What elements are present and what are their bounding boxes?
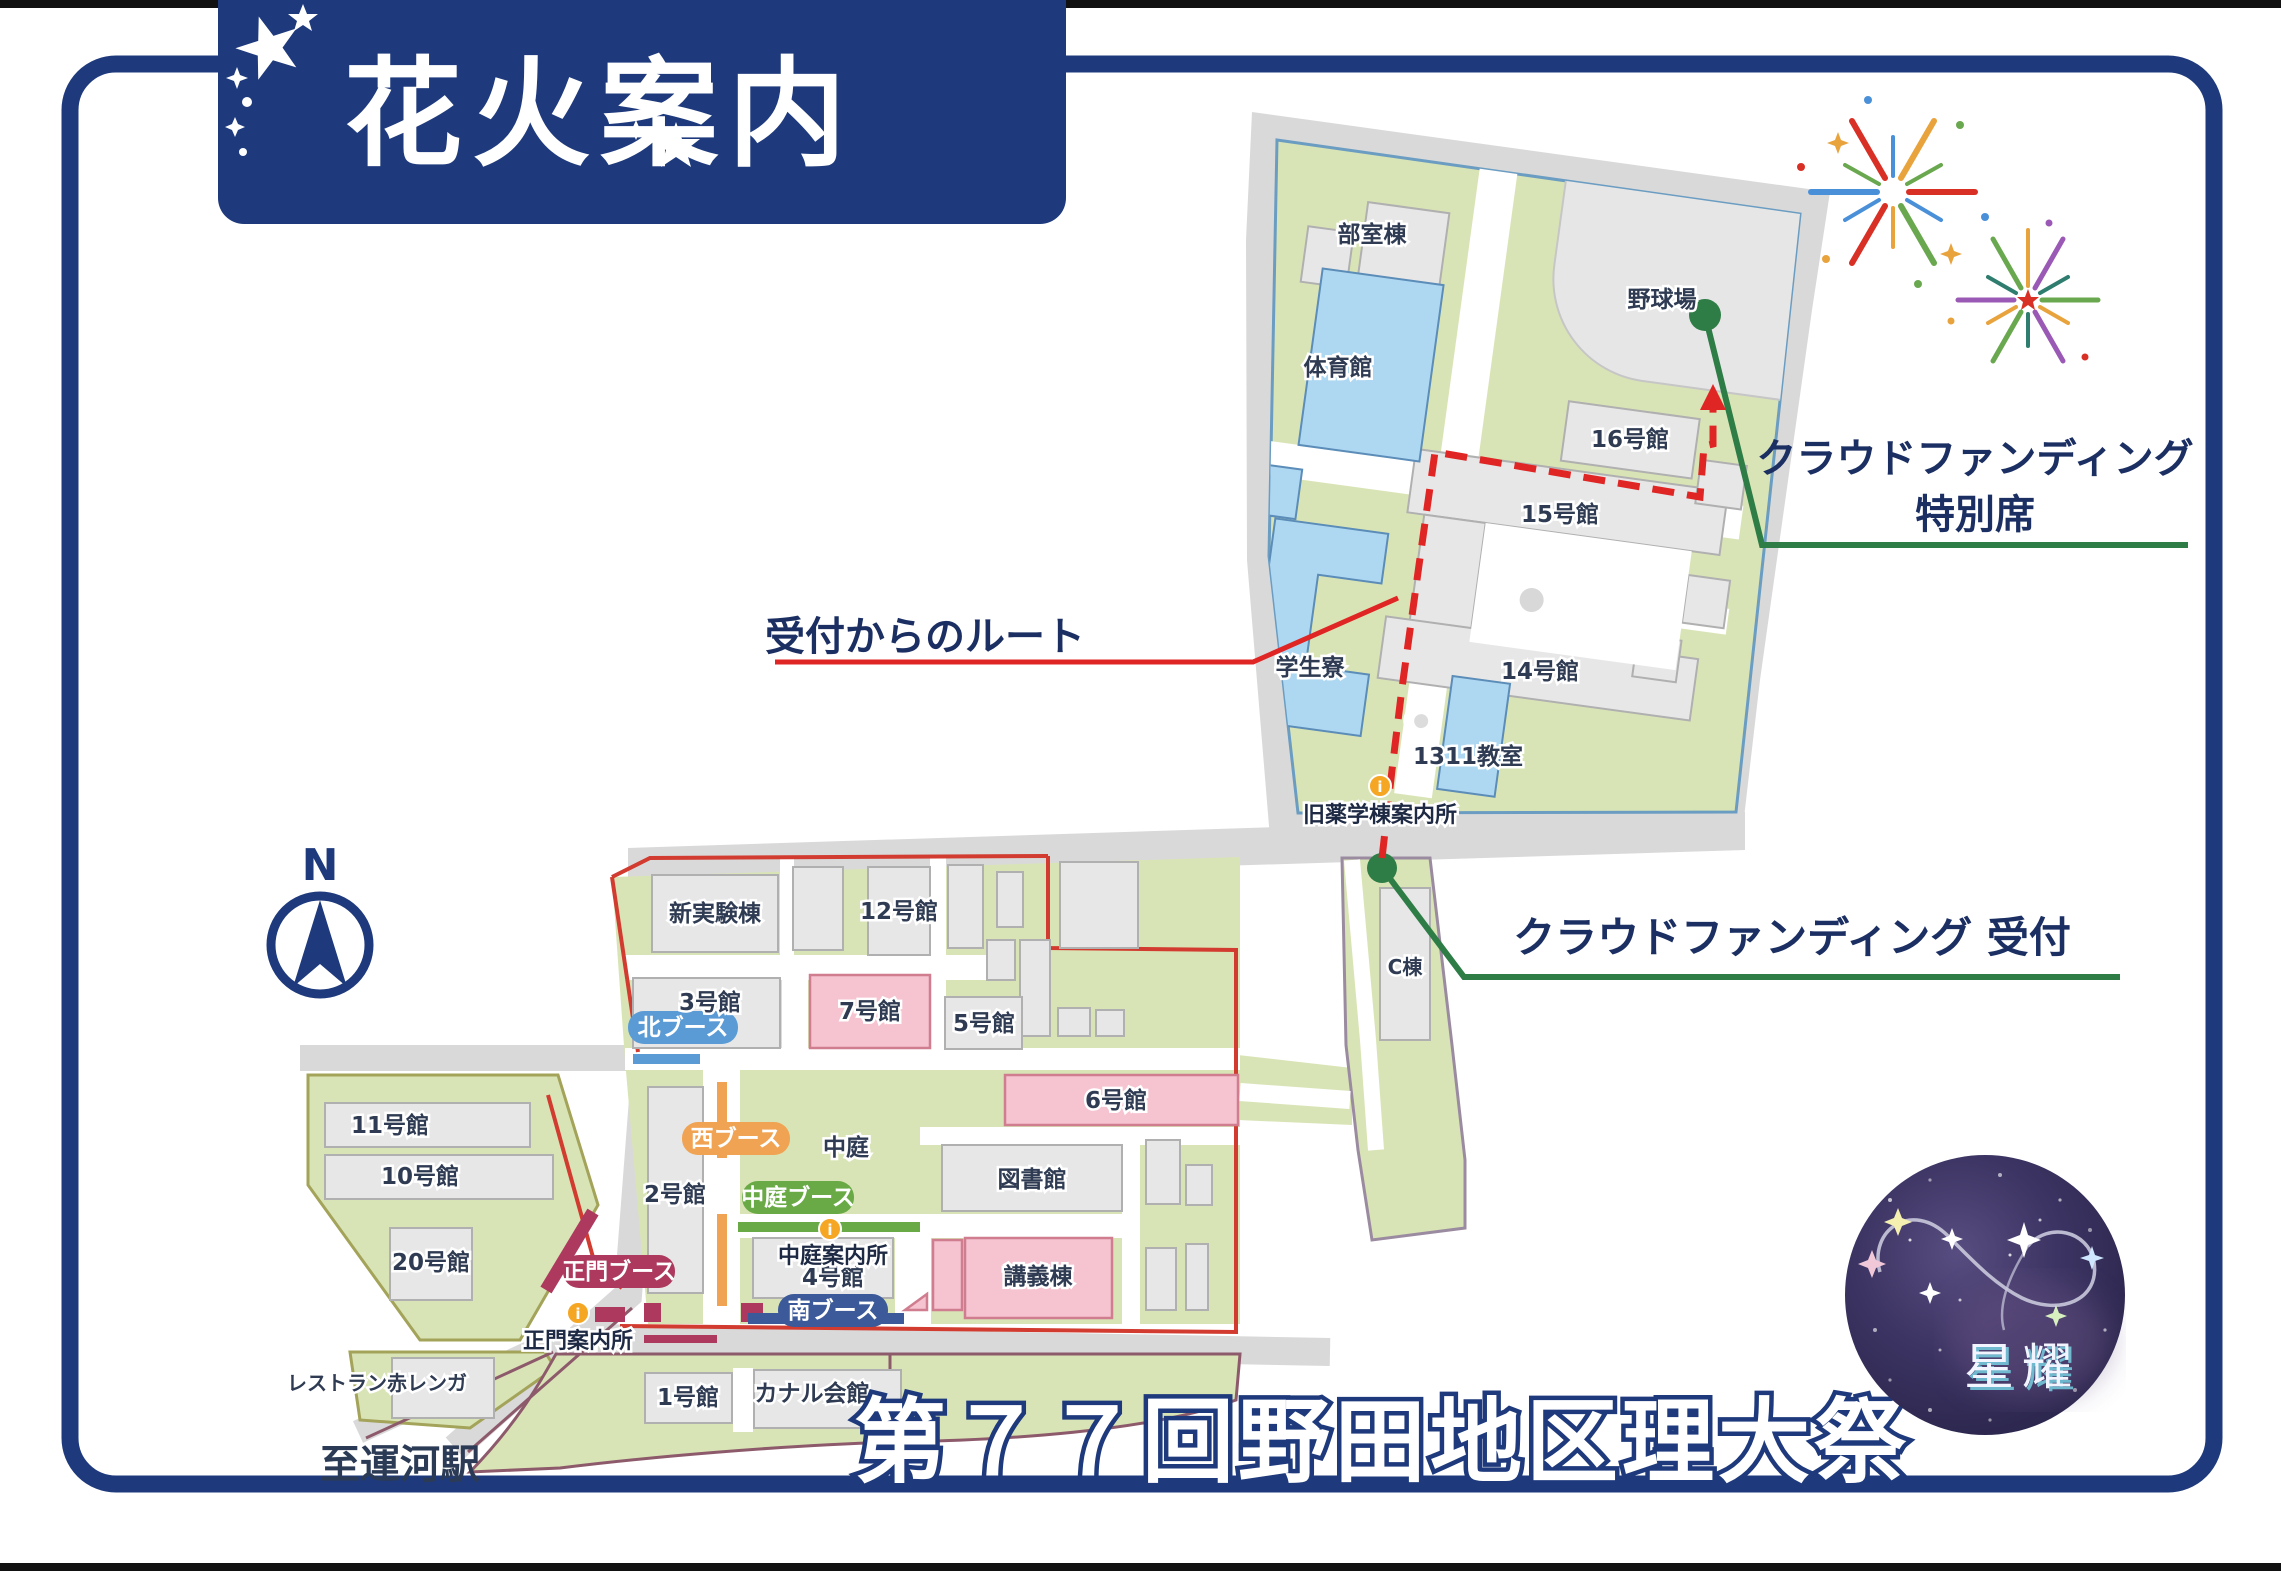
label-courtyard-info: 中庭案内所 [778,1243,888,1269]
label-1311: 1311教室 [1413,743,1523,770]
festival-title: 第７７回野田地区理大祭 [854,1389,1910,1496]
route-from-reception-label: 受付からのルート [765,614,1085,660]
label-5: 5号館 [953,1010,1015,1037]
label-6: 6号館 [1085,1087,1147,1114]
poster-title: 花火案内 [344,45,856,183]
special-seat-label-line1: クラウドファンディング [1756,436,2193,482]
courtyard-booth-label: 中庭ブース [741,1184,855,1211]
logo-name: 星耀 [1964,1338,2080,1396]
label-library: 図書館 [998,1166,1067,1193]
label-new-lab: 新実験棟 [669,900,762,927]
west-booth-marker-lower [717,1214,727,1306]
label-canal-hall: カナル会館 [755,1380,870,1407]
label-3: 3号館 [679,989,741,1016]
title-banner: 花火案内 [218,0,1066,224]
label-20: 20号館 [392,1249,470,1276]
label-14: 14号館 [1501,658,1579,685]
seiyou-logo: 星耀 星耀 [1845,1155,2125,1435]
letterbox-bottom [0,1563,2281,1571]
south-booth-label: 南ブース [788,1297,879,1324]
label-baseball: 野球場 [1628,287,1697,313]
label-15: 15号館 [1521,501,1599,528]
label-11: 11号館 [351,1112,429,1139]
label-2: 2号館 [644,1181,706,1208]
main-gate-booth-label: 正門ブース [562,1258,676,1285]
label-lecture: 講義棟 [1004,1263,1074,1290]
label-10: 10号館 [381,1163,459,1190]
north-booth-marker [633,1054,700,1064]
to-station-label: 至運河駅 [320,1442,480,1488]
label-12: 12号館 [860,898,938,925]
label-16: 16号館 [1591,426,1669,453]
svg-text:i: i [1377,778,1382,796]
crowdfunding-reception-label: クラウドファンディング 受付 [1513,913,2071,962]
label-dorm: 学生寮 [1276,654,1346,681]
label-main-gate-info: 正門案内所 [523,1328,633,1354]
svg-text:i: i [827,1221,832,1239]
compass-n-label: N [302,840,339,891]
fireworks-guide-poster: 北ブース 西ブース 中庭ブース 南ブース 正門ブース 部室棟 体育館 野球場 1… [0,0,2281,1571]
label-c-wing: C棟 [1388,955,1424,979]
label-old-pharm-info: 旧薬学棟案内所 [1303,802,1457,828]
label-courtyard: 中庭 [823,1134,869,1161]
west-booth-label: 西ブース [691,1125,782,1152]
label-bushitsu: 部室棟 [1338,221,1408,248]
special-seat-label-line2: 特別席 [1915,492,2035,538]
label-gym: 体育館 [1304,354,1373,381]
svg-text:i: i [575,1305,580,1323]
label-restaurant: レストラン赤レンガ [287,1371,467,1395]
label-7: 7号館 [839,998,901,1025]
label-1: 1号館 [657,1384,719,1411]
north-booth-label: 北ブース [638,1014,729,1041]
